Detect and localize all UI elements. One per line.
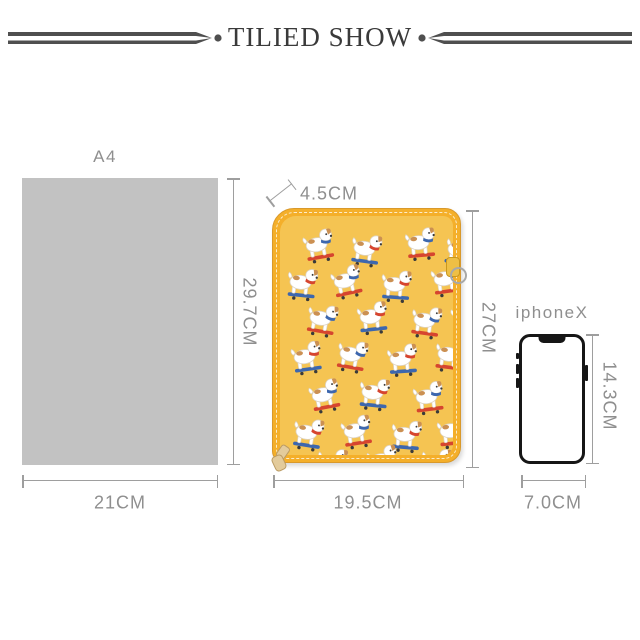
phone-width-label: 7.0CM (524, 493, 582, 514)
phone-volume-up-button-icon (516, 364, 519, 374)
a4-height-dimension-line (233, 178, 234, 465)
case-thickness-dimension-line (269, 183, 292, 202)
phone-mute-switch-icon (516, 353, 519, 359)
phone-height-dimension-line (592, 334, 593, 464)
size-comparison-page: TILIED SHOW A4 29.7CM 21CM 4.5CM (0, 0, 640, 640)
divider-ornament-left-icon (8, 31, 222, 45)
d-ring-icon (450, 267, 467, 284)
a4-height-label: 29.7CM (239, 277, 260, 346)
phone-outline (519, 334, 585, 464)
phone-power-button-icon (585, 365, 588, 381)
case-product-image (272, 208, 461, 463)
phone-volume-down-button-icon (516, 378, 519, 388)
case-width-label: 19.5CM (333, 493, 402, 514)
case-height-dimension-line (472, 210, 473, 468)
dog-skateboard-pattern-illustration (280, 216, 453, 455)
divider-ornament-right-icon (418, 31, 632, 45)
a4-width-label: 21CM (94, 493, 146, 514)
page-title: TILIED SHOW (228, 22, 412, 53)
case-width-dimension-line (273, 480, 464, 481)
phone-height-label: 14.3CM (599, 361, 620, 430)
case-height-label: 27CM (478, 302, 499, 354)
a4-sheet (22, 178, 218, 465)
case-thickness-label: 4.5CM (300, 184, 358, 205)
phone-notch-icon (539, 337, 566, 344)
phone-width-dimension-line (521, 480, 586, 481)
a4-label: A4 (93, 147, 117, 167)
phone-label: iphoneX (516, 303, 589, 323)
a4-width-dimension-line (22, 480, 218, 481)
case-front-panel (280, 216, 453, 455)
